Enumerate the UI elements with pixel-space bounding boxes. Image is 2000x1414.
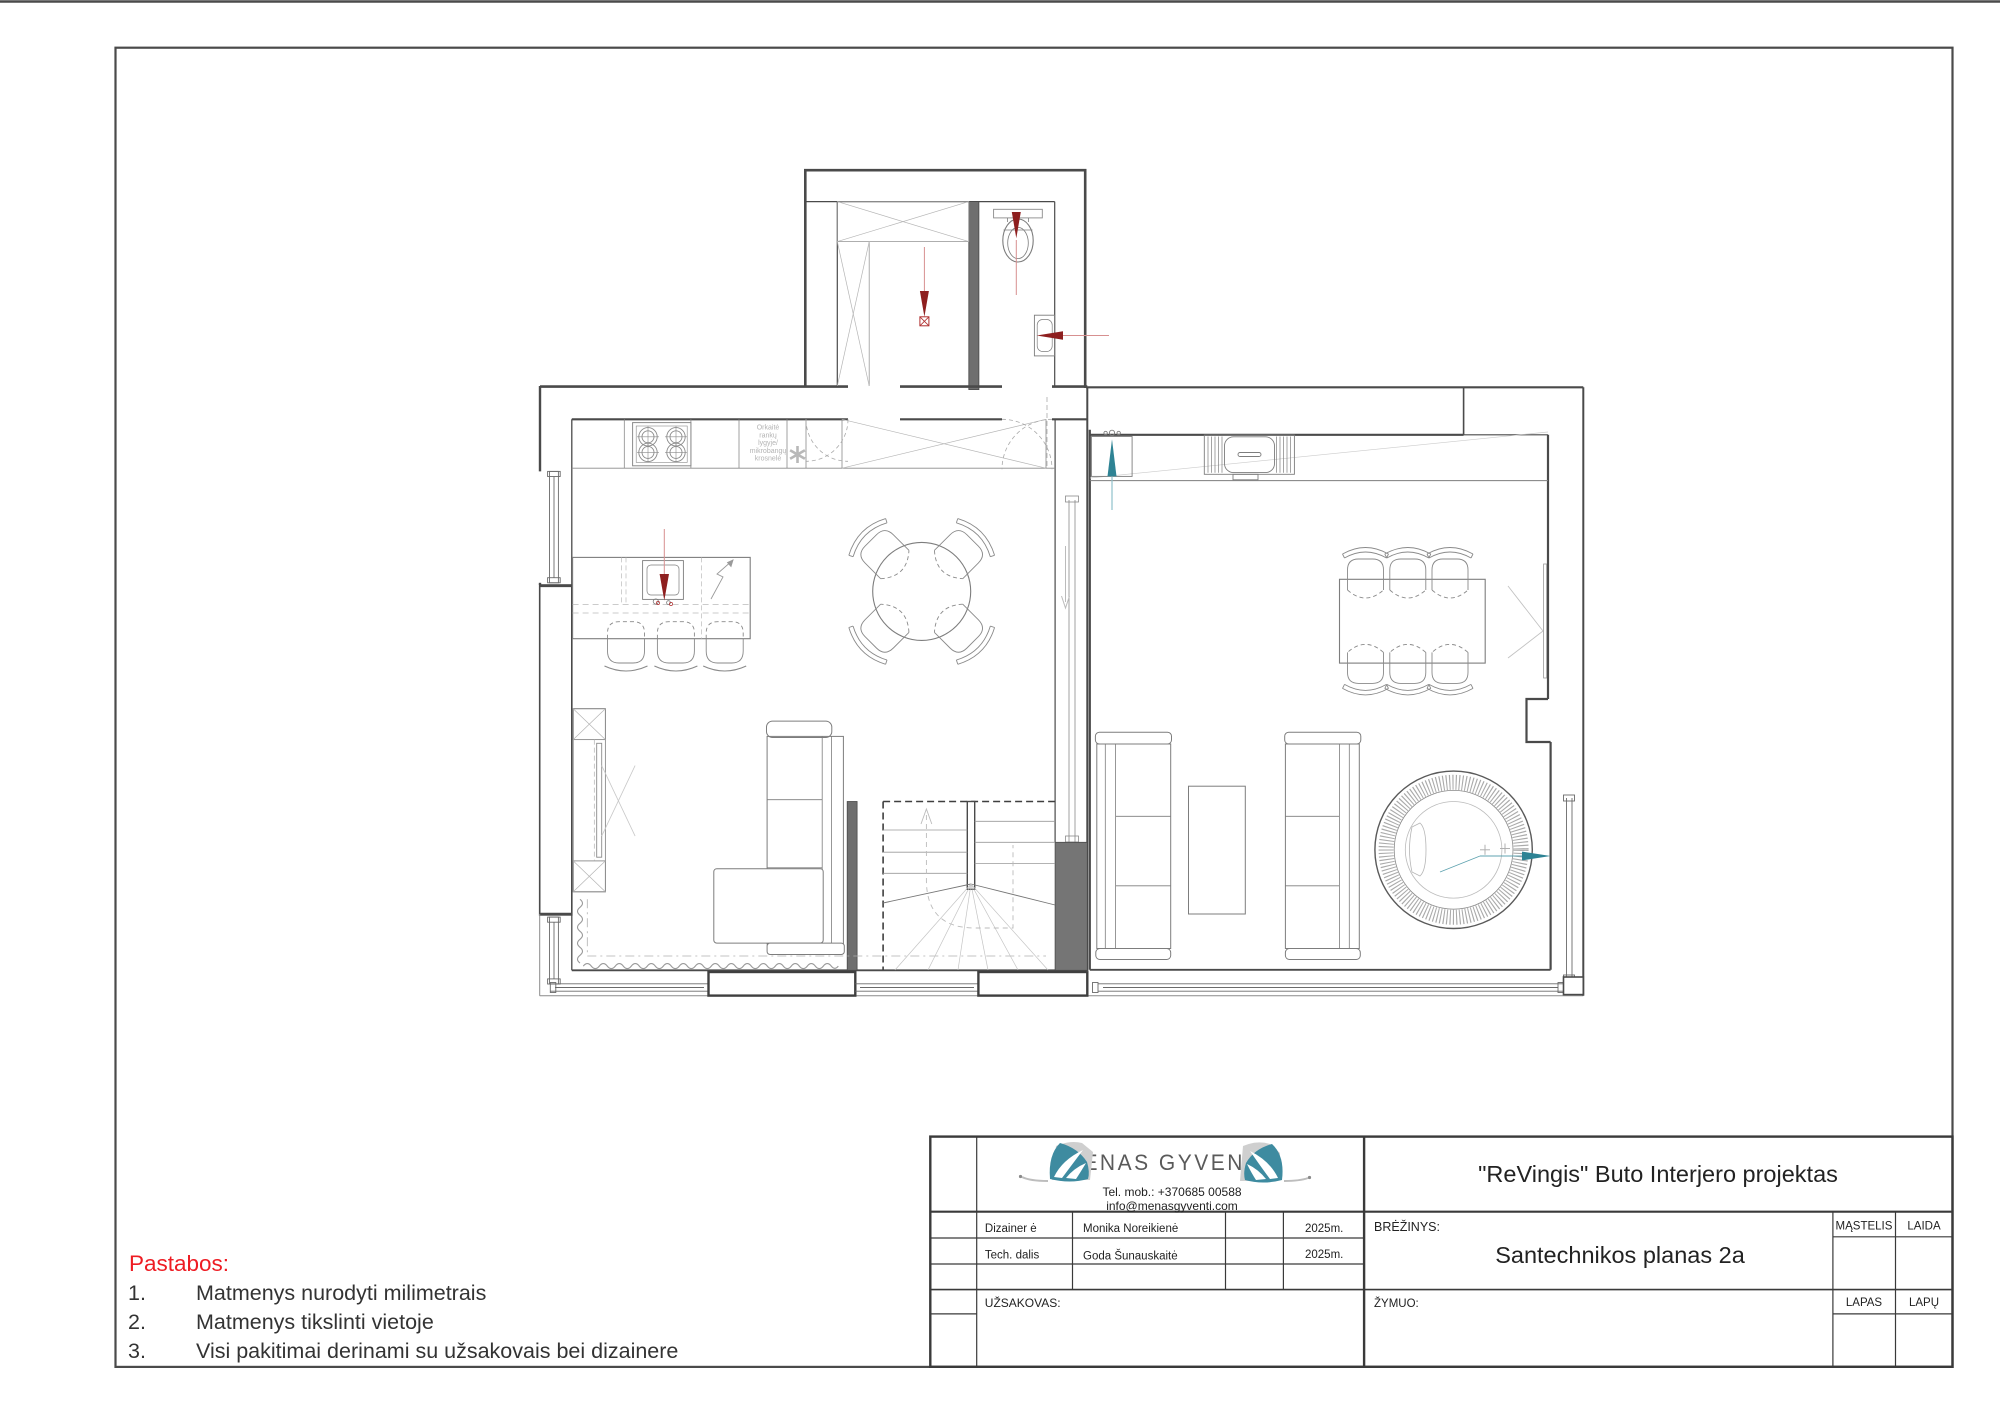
svg-text:3.: 3. xyxy=(128,1339,146,1363)
svg-text:mikrobangų: mikrobangų xyxy=(750,448,787,455)
svg-text:LAIDA: LAIDA xyxy=(1907,1221,1941,1233)
svg-text:Pastabos:: Pastabos: xyxy=(129,1251,229,1276)
svg-text:krosnelė: krosnelė xyxy=(755,456,782,463)
svg-text:rankų: rankų xyxy=(759,432,777,439)
svg-text:LAPŲ: LAPŲ xyxy=(1909,1297,1939,1309)
svg-text:Matmenys nurodyti milimetrais: Matmenys nurodyti milimetrais xyxy=(196,1281,486,1305)
svg-text:"ReVingis" Buto Interjero proj: "ReVingis" Buto Interjero projektas xyxy=(1478,1161,1838,1187)
svg-text:2025m.: 2025m. xyxy=(1305,1223,1343,1235)
svg-text:Matmenys tikslinti vietoje: Matmenys tikslinti vietoje xyxy=(196,1310,434,1334)
svg-text:Tech. dalis: Tech. dalis xyxy=(985,1250,1040,1262)
svg-text:lygyje/: lygyje/ xyxy=(758,440,778,447)
svg-text:Orkaitė: Orkaitė xyxy=(757,425,780,432)
svg-text:BRĖŽINYS:: BRĖŽINYS: xyxy=(1374,1219,1440,1234)
svg-text:2.: 2. xyxy=(128,1310,146,1334)
svg-text:Santechnikos planas 2a: Santechnikos planas 2a xyxy=(1495,1242,1745,1268)
svg-text:1.: 1. xyxy=(128,1281,146,1305)
svg-text:Visi pakitimai derinami su užs: Visi pakitimai derinami su užsakovais be… xyxy=(196,1339,678,1363)
svg-text:MENAS GYVENTI: MENAS GYVENTI xyxy=(1063,1151,1268,1175)
svg-text:2025m.: 2025m. xyxy=(1305,1249,1343,1261)
svg-text:Tel. mob.: +370685 00588: Tel. mob.: +370685 00588 xyxy=(1102,1185,1241,1199)
svg-text:info@menasgyventi.com: info@menasgyventi.com xyxy=(1106,1199,1238,1213)
svg-text:Goda Šunauskaitė: Goda Šunauskaitė xyxy=(1083,1250,1178,1263)
svg-text:LAPAS: LAPAS xyxy=(1846,1297,1883,1309)
svg-text:Monika Noreikienė: Monika Noreikienė xyxy=(1083,1223,1178,1235)
svg-text:ŽYMUO:: ŽYMUO: xyxy=(1374,1297,1419,1310)
svg-text:Dizainer ė: Dizainer ė xyxy=(985,1223,1037,1235)
svg-text:UŽSAKOVAS:: UŽSAKOVAS: xyxy=(985,1295,1061,1310)
svg-text:MĄSTELIS: MĄSTELIS xyxy=(1836,1221,1893,1233)
